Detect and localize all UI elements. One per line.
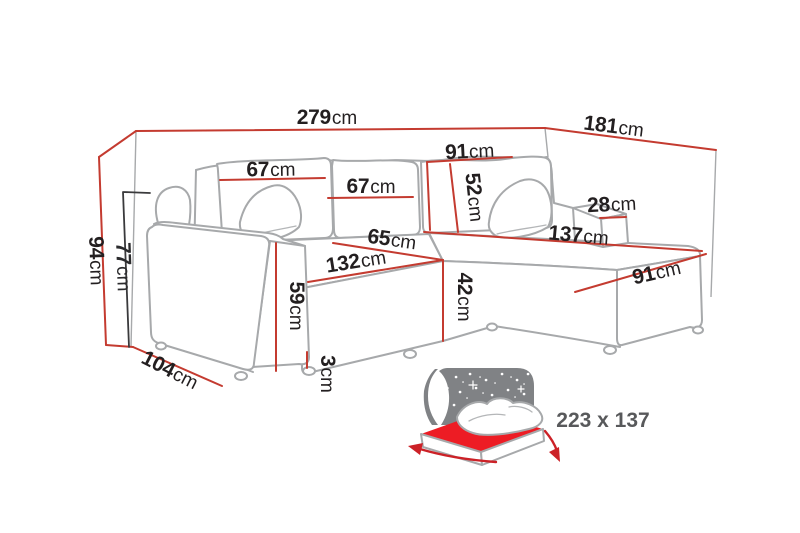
dim-armrest-height-label: 59cm [285, 281, 308, 330]
leg [404, 350, 416, 358]
sleeping-area-label: 223 x 137 [556, 409, 649, 432]
leg [604, 346, 616, 354]
arrow-width-head [408, 443, 423, 455]
leg [487, 324, 497, 331]
dim-total-width-label: 279cm [297, 106, 357, 129]
leg [235, 372, 247, 380]
dim-seat-height-label: 42cm [453, 272, 476, 321]
leg [303, 367, 315, 375]
dim-left-top-connector [99, 131, 136, 157]
sofa-dimension-diagram: 279cm 181cm 91cm 67cm 67cm 52cm 28cm 137… [0, 0, 800, 533]
arrow-depth [545, 431, 557, 451]
dim-back-cushion-middle-label: 67cm [346, 175, 395, 198]
dim-corner-backrest-label: 91cm [445, 139, 495, 165]
guide-left [131, 131, 136, 347]
leg [156, 343, 166, 350]
dim-total-height-label: 94cm [84, 236, 109, 286]
sleeping-function-icon: 223 x 137 [408, 368, 650, 465]
dim-side-armrest-line [600, 217, 626, 218]
sofa-drawing [147, 157, 703, 380]
dim-side-armrest-label: 28cm [587, 192, 637, 218]
arrow-depth-head [549, 447, 560, 462]
guide-corner [545, 128, 548, 157]
dim-back-cushion-left-label: 67cm [246, 158, 295, 182]
dim-total-depth-label: 181cm [582, 111, 645, 141]
dim-leg-height-label: 3cm [316, 355, 339, 393]
moon-sliver [424, 369, 438, 425]
pillow-left-small [156, 187, 191, 227]
blanket [457, 398, 542, 435]
leg [693, 327, 703, 334]
guide-right [711, 150, 716, 297]
left-armrest [147, 222, 309, 370]
diagram-canvas: 279cm 181cm 91cm 67cm 67cm 52cm 28cm 137… [0, 0, 800, 533]
dim-backrest-height-label: 77cm [111, 242, 136, 292]
